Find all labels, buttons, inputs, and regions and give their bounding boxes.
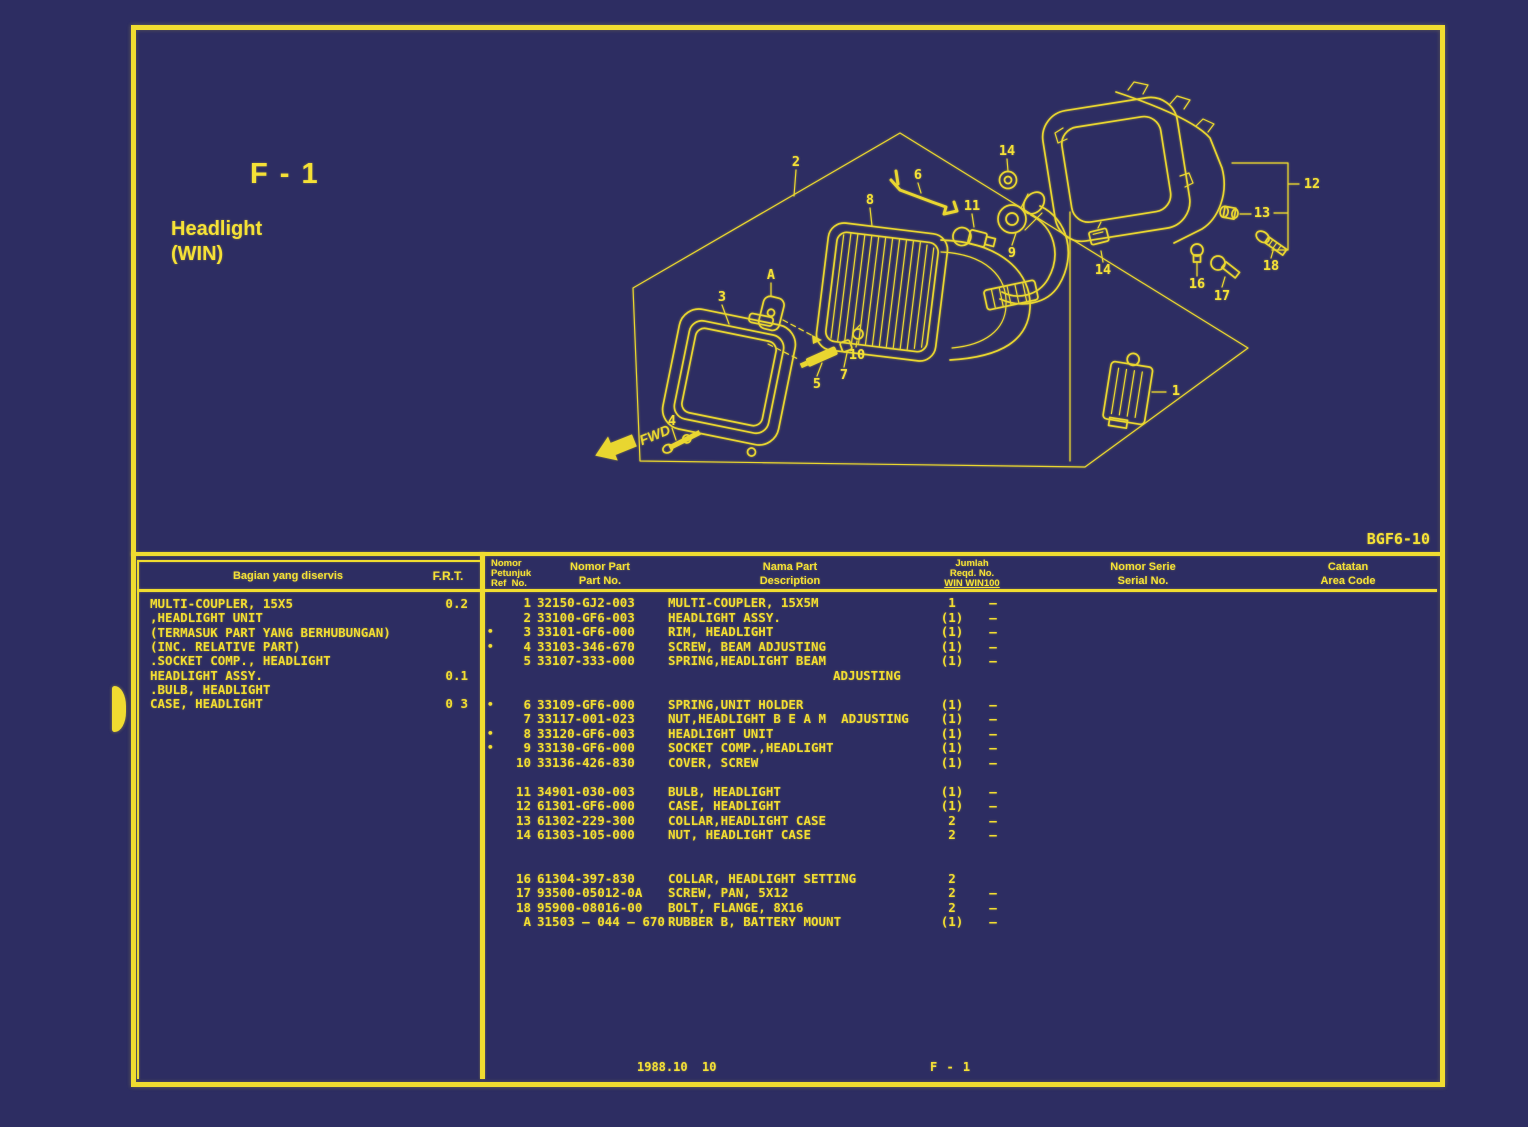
section-code: F - 1 [250,158,320,191]
parts-row: 18 95900-08016-00 BOLT, FLANGE, 8X16 2 — [0,901,1528,915]
qty-win100-cell: — [975,886,1011,900]
frt-col-header: F.R.T. [422,569,474,583]
parts-row: • 3 33101-GF6-000 RIM, HEADLIGHT (1) — [0,625,1528,639]
ref-no-cell: 18 [495,901,531,915]
qty-header-l3: WIN WIN100 [922,578,1022,589]
parts-row: • 4 33103-346-670 SCREW, BEAM ADJUSTING … [0,640,1528,654]
parts-row: 2 33100-GF6-003 HEADLIGHT ASSY. (1) — [0,611,1528,625]
ref-no-cell: 8 [495,727,531,741]
parts-row: 16 61304-397-830 COLLAR, HEADLIGHT SETTI… [0,872,1528,886]
callout-8: 8 [866,192,874,208]
callout-14: 14 [999,143,1015,159]
callout-6: 6 [914,167,922,183]
ref-no-cell: 14 [495,828,531,842]
callout-10: 10 [849,347,865,363]
parts-row: 14 61303-105-000 NUT, HEADLIGHT CASE 2 — [0,828,1528,842]
ref-no-cell: 7 [495,712,531,726]
ref-no-cell: 1 [495,596,531,610]
qty-win100-cell: — [975,814,1011,828]
qty-win100-cell: — [975,625,1011,639]
parts-row-continuation: ADJUSTING [0,669,1528,683]
callout-18: 18 [1263,258,1279,274]
callout-5: 5 [813,376,821,392]
page-subtitle: (WIN) [171,243,223,266]
description-continuation: ADJUSTING [833,669,993,683]
callout-17: 17 [1214,288,1230,304]
callout-16: 16 [1189,276,1205,292]
qty-win100-cell: — [975,741,1011,755]
ref-no-cell: 2 [495,611,531,625]
callout-9: 9 [1008,245,1016,261]
qty-win-cell: (1) [928,698,976,712]
parts-row: • 8 33120-GF6-003 HEADLIGHT UNIT (1) — [0,727,1528,741]
parts-row: 11 34901-030-003 BULB, HEADLIGHT (1) — [0,785,1528,799]
ref-no-cell: 17 [495,886,531,900]
doc-ref: BGF6-10 [1318,530,1430,548]
serial-header-l1: Nomor Serie [1070,561,1216,573]
qty-win-cell: (1) [928,741,976,755]
ref-no-cell: A [495,915,531,929]
footer-code: F - 1 [930,1060,971,1074]
qty-win-cell: (1) [928,625,976,639]
footer-date: 1988.10 10 [637,1060,716,1074]
qty-win100-cell: — [975,698,1011,712]
qty-win100-cell: — [975,654,1011,668]
qty-win100-cell: — [975,611,1011,625]
parts-row: 5 33107-333-000 SPRING,HEADLIGHT BEAM (1… [0,654,1528,668]
service-row: .BULB, HEADLIGHT [0,683,1528,697]
callout-2: 2 [792,154,800,170]
area-header-l1: Catatan [1280,561,1416,573]
qty-win-cell: (1) [928,799,976,813]
ref-no-cell: 3 [495,625,531,639]
qty-win-cell: 2 [928,828,976,842]
ref-header-l3: Ref No. [491,578,527,589]
parts-catalog-page: { "colors":{"background":"#2d2d62","acce… [0,0,1528,1127]
qty-win100-cell: — [975,727,1011,741]
qty-win-cell: (1) [928,915,976,929]
callout-11: 11 [964,198,980,214]
page-title: Headlight [171,218,262,241]
parts-row: • 6 33109-GF6-000 SPRING,UNIT HOLDER (1)… [0,698,1528,712]
ref-no-cell: 4 [495,640,531,654]
parts-row: 7 33117-001-023 NUT,HEADLIGHT B E A M AD… [0,712,1528,726]
parts-row: 10 33136-426-830 COVER, SCREW (1) — [0,756,1528,770]
qty-win-cell: (1) [928,756,976,770]
callout-4: 4 [668,413,676,429]
service-col-header: Bagian yang diservis [150,570,426,582]
qty-win-cell: (1) [928,785,976,799]
qty-win-cell: 2 [928,901,976,915]
service-table-top-line [137,560,481,562]
qty-win-cell: (1) [928,712,976,726]
ref-no-cell: 16 [495,872,531,886]
qty-win100-cell: — [975,901,1011,915]
callout-7: 7 [840,367,848,383]
callout-13: 13 [1254,205,1270,221]
qty-win-cell: (1) [928,654,976,668]
area-header-l2: Area Code [1280,575,1416,587]
serial-header-l2: Serial No. [1070,575,1216,587]
qty-win-cell: (1) [928,611,976,625]
parts-row: 17 93500-05012-0A SCREW, PAN, 5X12 2 — [0,886,1528,900]
ref-no-cell: 9 [495,741,531,755]
qty-win-cell: 1 [928,596,976,610]
qty-win100-cell: — [975,799,1011,813]
header-underline [137,589,1437,592]
desc-header-l1: Nama Part [700,561,880,573]
desc-header-l2: Description [700,575,880,587]
ref-no-cell: 13 [495,814,531,828]
qty-win-cell: 2 [928,814,976,828]
qty-win100-cell: — [975,756,1011,770]
ref-no-cell: 5 [495,654,531,668]
partno-header-l2: Part No. [535,575,665,587]
qty-win-cell: (1) [928,727,976,741]
ref-no-cell: 10 [495,756,531,770]
callout-A: A [767,267,775,283]
parts-row: 13 61302-229-300 COLLAR,HEADLIGHT CASE 2… [0,814,1528,828]
qty-win-cell: 2 [928,886,976,900]
ref-no-cell: 12 [495,799,531,813]
service-item-text: .BULB, HEADLIGHT [150,683,460,697]
qty-win100-cell: — [975,712,1011,726]
callout-3: 3 [718,289,726,305]
qty-win100-cell: — [975,785,1011,799]
callout-14: 14 [1095,262,1111,278]
ref-no-cell: 11 [495,785,531,799]
parts-row: A 31503 — 044 — 670 RUBBER B, BATTERY MO… [0,915,1528,929]
qty-win100-cell: — [975,915,1011,929]
qty-win-cell: 2 [928,872,976,886]
parts-row: 1 32150-GJ2-003 MULTI-COUPLER, 15X5M 1 — [0,596,1528,610]
qty-win100-cell: — [975,828,1011,842]
ref-no-cell: 6 [495,698,531,712]
partno-header-l1: Nomor Part [535,561,665,573]
qty-win100-cell: — [975,596,1011,610]
parts-row: • 9 33130-GF6-000 SOCKET COMP.,HEADLIGHT… [0,741,1528,755]
qty-win-cell: (1) [928,640,976,654]
callout-1: 1 [1172,383,1180,399]
parts-row: 12 61301-GF6-000 CASE, HEADLIGHT (1) — [0,799,1528,813]
qty-win100-cell: — [975,640,1011,654]
callout-12: 12 [1304,176,1320,192]
table-top-line [131,552,1440,556]
